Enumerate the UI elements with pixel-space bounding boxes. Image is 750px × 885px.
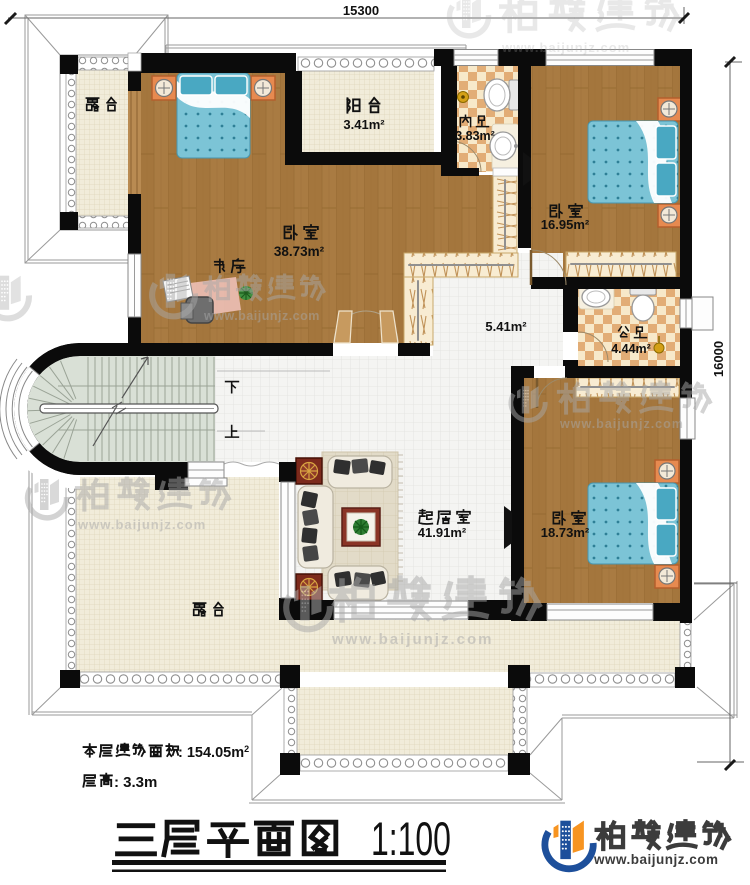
- svg-text:16.95m²: 16.95m²: [541, 217, 590, 232]
- svg-text:18.73m²: 18.73m²: [541, 525, 590, 540]
- svg-text:www.baijunjz.com: www.baijunjz.com: [77, 517, 206, 532]
- svg-text:5.41m²: 5.41m²: [485, 319, 527, 334]
- svg-text:16000: 16000: [711, 341, 726, 377]
- svg-text:41.91m²: 41.91m²: [418, 525, 467, 540]
- svg-text:1:100: 1:100: [371, 813, 451, 866]
- svg-text:4.44m²: 4.44m²: [611, 342, 651, 356]
- svg-text:www.baijunjz.com: www.baijunjz.com: [203, 309, 320, 323]
- svg-text:15300: 15300: [343, 3, 379, 18]
- svg-text:: 3.3m: : 3.3m: [114, 774, 157, 791]
- svg-text:3.83m²: 3.83m²: [455, 129, 495, 143]
- svg-text:www.baijunjz.com: www.baijunjz.com: [593, 852, 719, 867]
- svg-text:www.baijunjz.com: www.baijunjz.com: [559, 417, 684, 431]
- svg-text:www.baijunjz.com: www.baijunjz.com: [331, 631, 493, 648]
- svg-text:38.73m²: 38.73m²: [274, 244, 325, 259]
- svg-text:3.41m²: 3.41m²: [343, 117, 385, 132]
- svg-text:: 154.05m2: : 154.05m2: [178, 744, 249, 761]
- svg-text:www.baijunjz.com: www.baijunjz.com: [501, 40, 630, 55]
